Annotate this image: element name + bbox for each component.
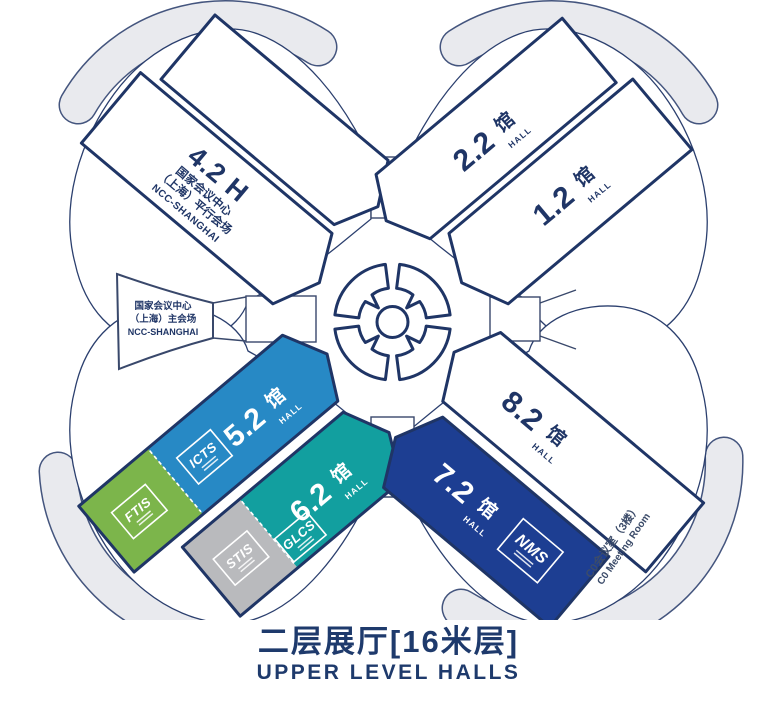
- hub-segment-se: [397, 326, 451, 380]
- central-hub: [335, 264, 450, 379]
- hub-core: [377, 307, 408, 338]
- hub-segment-nw: [335, 264, 389, 318]
- floor-map: 国家会议中心 （上海）主会场 NCC-SHANGHAI 4.2 H 国家会议中心…: [0, 0, 777, 620]
- title-block: 二层展厅[16米层] UPPER LEVEL HALLS: [0, 624, 777, 686]
- page-title-en: UPPER LEVEL HALLS: [0, 660, 777, 686]
- hub-segment-sw: [335, 326, 389, 380]
- ncc-main-line1: 国家会议中心: [134, 300, 192, 312]
- floor-plan-page: { "title": { "cn": "二层展厅[16米层]", "en": "…: [0, 0, 777, 728]
- page-title-cn: 二层展厅[16米层]: [0, 624, 777, 660]
- ncc-main-line3: NCC-SHANGHAI: [128, 327, 199, 337]
- ncc-main-line2: （上海）主会场: [130, 313, 197, 325]
- hub-segment-ne: [397, 264, 451, 318]
